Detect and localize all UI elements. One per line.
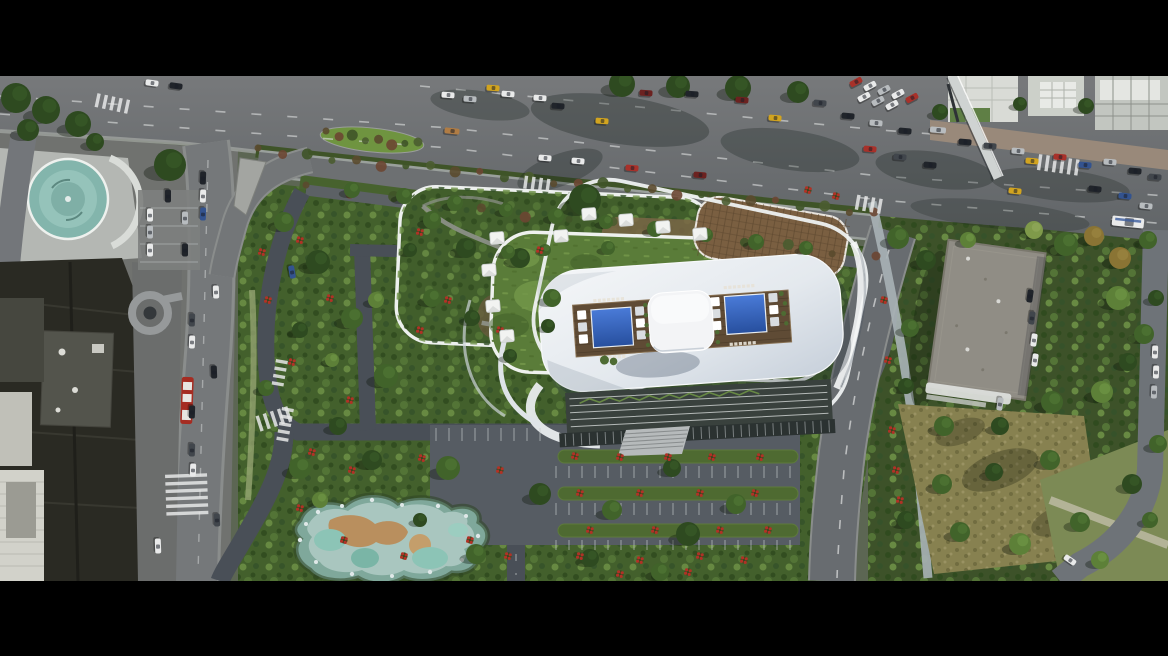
car: [1024, 157, 1039, 166]
canopy-tent: [490, 231, 505, 244]
car-glass: [774, 116, 778, 120]
flower: [580, 494, 583, 497]
flower: [636, 560, 639, 563]
flower: [656, 527, 659, 530]
car: [211, 284, 219, 299]
flower: [756, 457, 759, 460]
flower: [832, 196, 835, 199]
car: [892, 153, 907, 162]
flower: [297, 504, 300, 507]
car: [982, 142, 997, 151]
flower: [536, 250, 539, 253]
flower: [893, 427, 896, 430]
canopy-tent: [582, 207, 597, 220]
median-bush: [846, 209, 853, 216]
flower: [888, 361, 891, 364]
car-glass: [1093, 187, 1097, 191]
flower: [752, 489, 755, 492]
car: [1127, 167, 1142, 176]
aerial-scene: [0, 0, 1168, 656]
flower: [580, 557, 583, 560]
car: [767, 114, 782, 123]
median-bush: [402, 162, 409, 169]
car-glass: [904, 129, 908, 133]
tree-highlight: [374, 294, 382, 302]
tree-highlight: [383, 366, 395, 378]
car: [187, 442, 195, 457]
flower: [496, 470, 499, 473]
entry-stairs: [618, 426, 690, 456]
tree-highlight: [1130, 476, 1140, 486]
car-glass: [1123, 194, 1127, 198]
flower: [668, 458, 671, 461]
car-glass: [492, 86, 496, 90]
alley: [132, 262, 182, 581]
median-bush: [829, 250, 836, 257]
flower: [309, 448, 312, 451]
flower: [505, 552, 508, 555]
flower: [884, 360, 887, 363]
tree-highlight: [966, 234, 974, 242]
car-glass: [214, 291, 218, 295]
flower: [572, 452, 575, 455]
flower: [416, 232, 419, 235]
letterbox-bar-top: [0, 0, 1168, 76]
median-bush: [386, 139, 397, 150]
flower: [701, 490, 704, 493]
flower: [885, 356, 888, 359]
flower: [420, 233, 423, 236]
car: [187, 334, 195, 349]
median-bush: [566, 216, 573, 223]
flower: [900, 501, 903, 504]
tree-highlight: [75, 114, 88, 127]
flower: [804, 190, 807, 193]
flower: [417, 326, 420, 329]
car-glass: [998, 402, 1002, 406]
flower: [404, 557, 407, 560]
flower: [445, 296, 448, 299]
car-glass: [148, 214, 152, 218]
tree-highlight: [1078, 514, 1088, 524]
car-glass: [290, 270, 295, 274]
flower: [576, 493, 579, 496]
flower: [296, 508, 299, 511]
flower: [697, 552, 700, 555]
flower: [641, 490, 644, 493]
tree-highlight: [506, 246, 513, 253]
car: [928, 126, 946, 135]
tree-highlight: [418, 514, 425, 521]
car: [485, 84, 500, 92]
tree-highlight: [464, 240, 474, 250]
car-glass: [201, 213, 205, 217]
car: [812, 99, 827, 108]
car-glass: [190, 411, 194, 415]
car-glass: [1031, 159, 1035, 163]
flower: [651, 530, 654, 533]
flower: [764, 530, 767, 533]
flower: [577, 489, 580, 492]
car-glass: [1017, 149, 1021, 153]
flower: [700, 494, 703, 497]
tree-highlight: [588, 551, 597, 560]
flower: [740, 560, 743, 563]
flower: [897, 496, 900, 499]
flower: [885, 297, 888, 300]
flower: [637, 489, 640, 492]
flower: [896, 500, 899, 503]
flower: [808, 191, 811, 194]
flower: [684, 572, 687, 575]
flower: [897, 467, 900, 470]
flower: [296, 240, 299, 243]
median-bush: [476, 168, 483, 175]
car-glass: [148, 231, 152, 235]
flower: [418, 458, 421, 461]
flower: [620, 458, 623, 461]
tree-highlight: [350, 184, 358, 192]
car: [1010, 147, 1025, 156]
flower: [405, 553, 408, 556]
flower: [889, 357, 892, 360]
car-glass: [964, 140, 968, 144]
car-glass: [150, 81, 154, 85]
tree-highlight: [735, 78, 748, 91]
flower: [300, 241, 303, 244]
flower: [713, 454, 716, 457]
flower: [688, 573, 691, 576]
car-glass: [201, 177, 205, 181]
flower: [616, 574, 619, 577]
car: [1151, 364, 1159, 379]
flower: [350, 401, 353, 404]
tree-highlight: [544, 245, 550, 251]
car: [212, 512, 220, 527]
flower: [617, 453, 620, 456]
flower: [587, 526, 590, 529]
flower: [500, 471, 503, 474]
flower: [884, 301, 887, 304]
flower: [696, 556, 699, 559]
tree-highlight: [1098, 553, 1107, 562]
tree-highlight: [1148, 514, 1156, 522]
car: [181, 242, 189, 257]
car-glass: [577, 159, 581, 163]
flower: [809, 187, 812, 190]
car: [1052, 153, 1067, 162]
flower: [259, 248, 262, 251]
median-bush: [414, 138, 423, 147]
flower: [300, 509, 303, 512]
flower: [421, 229, 424, 232]
tree-highlight: [904, 513, 913, 522]
flower: [744, 561, 747, 564]
car: [440, 91, 455, 99]
car-glass: [507, 92, 511, 96]
flower: [590, 531, 593, 534]
flower: [293, 359, 296, 362]
flower: [340, 540, 343, 543]
tree-highlight: [1092, 228, 1102, 238]
flower: [470, 541, 473, 544]
median-bush: [698, 191, 705, 198]
tree-highlight: [330, 354, 337, 361]
car-glass: [215, 519, 219, 523]
flower: [768, 531, 771, 534]
car-glass: [1109, 160, 1113, 164]
car: [1147, 173, 1162, 182]
flower: [889, 426, 892, 429]
car: [1077, 161, 1092, 170]
car: [922, 161, 937, 170]
median-bush: [362, 137, 369, 144]
flower: [717, 526, 720, 529]
tree-highlight: [1146, 233, 1155, 242]
tree-highlight: [1156, 437, 1165, 446]
car-glass: [691, 92, 695, 96]
tree-highlight: [924, 252, 934, 262]
flower: [837, 193, 840, 196]
garden-path-road: [362, 248, 368, 430]
car-glass: [174, 84, 178, 88]
tree-highlight: [430, 213, 439, 222]
car-glass: [1134, 169, 1138, 173]
flower: [751, 493, 754, 496]
flower: [341, 536, 344, 539]
tree-highlight: [998, 419, 1007, 428]
flower: [576, 556, 579, 559]
car-glass: [544, 156, 548, 160]
tree-highlight: [1063, 234, 1075, 246]
car: [862, 145, 877, 154]
flower: [330, 299, 333, 302]
flower: [655, 531, 658, 534]
flower: [669, 454, 672, 457]
letterbox-bar-bottom: [0, 581, 1168, 656]
canopy-tent: [693, 227, 708, 240]
median-bush: [303, 182, 310, 189]
median-bush: [819, 201, 830, 212]
flower: [401, 552, 404, 555]
car: [550, 102, 565, 110]
tree-highlight: [1049, 393, 1060, 404]
median-bush: [872, 252, 881, 261]
tree-highlight: [93, 135, 102, 144]
flower: [720, 531, 723, 534]
median-bush: [550, 180, 557, 187]
flower: [745, 557, 748, 560]
flower: [575, 457, 578, 460]
flower: [264, 300, 267, 303]
swimming-pool-right: [724, 294, 767, 335]
tree-highlight: [1142, 326, 1152, 336]
car: [198, 206, 206, 221]
tree-highlight: [942, 418, 952, 428]
flower: [265, 296, 268, 299]
flower: [708, 457, 711, 460]
tree-highlight: [166, 152, 182, 168]
car-glass: [1153, 351, 1157, 355]
car-glass: [190, 341, 194, 345]
car-glass: [1152, 391, 1156, 395]
car: [188, 462, 196, 477]
flower: [709, 453, 712, 456]
median-bush: [255, 145, 262, 152]
flower: [269, 297, 272, 300]
tree-highlight: [581, 187, 597, 203]
flower: [466, 540, 469, 543]
car-glass: [201, 195, 205, 199]
car-glass: [819, 101, 823, 105]
tree-highlight: [43, 99, 57, 113]
median-bush: [352, 155, 361, 164]
tree-highlight: [958, 524, 968, 534]
flower: [308, 452, 311, 455]
flower: [297, 236, 300, 239]
car: [462, 95, 477, 103]
flower: [712, 458, 715, 461]
flower: [400, 556, 403, 559]
tree-highlight: [685, 524, 697, 536]
car-glass: [191, 469, 195, 473]
median-bush: [376, 161, 387, 172]
flower: [640, 494, 643, 497]
tree-highlight: [606, 242, 613, 249]
flower: [326, 298, 329, 301]
tree-highlight: [938, 106, 946, 114]
tree-highlight: [1126, 355, 1135, 364]
tree-highlight: [12, 86, 27, 101]
flower: [331, 295, 334, 298]
canopy-tent: [500, 329, 515, 342]
car: [537, 154, 552, 163]
flower: [288, 362, 291, 365]
median-bush: [335, 132, 344, 141]
car: [198, 170, 206, 185]
tree-highlight: [554, 210, 562, 218]
flower: [496, 330, 499, 333]
car-glass: [156, 544, 160, 548]
flower: [312, 453, 315, 456]
flower: [755, 494, 758, 497]
car-glass: [869, 147, 873, 151]
flower: [351, 397, 354, 400]
tree-highlight: [453, 197, 461, 205]
flower: [467, 536, 470, 539]
flower: [444, 300, 447, 303]
median-bush: [772, 197, 779, 204]
flower: [349, 466, 352, 469]
median-bush: [401, 140, 408, 147]
flower: [262, 253, 265, 256]
flower: [836, 197, 839, 200]
flower: [541, 247, 544, 250]
flower: [540, 251, 543, 254]
median-bush: [745, 195, 756, 206]
tree-highlight: [754, 236, 762, 244]
flower: [421, 327, 424, 330]
flower: [696, 493, 699, 496]
tree-highlight: [1117, 249, 1128, 260]
tree-highlight: [408, 244, 415, 251]
flower: [313, 449, 316, 452]
flower: [344, 541, 347, 544]
flower: [497, 466, 500, 469]
car-glass: [601, 119, 605, 123]
car: [840, 112, 855, 121]
car: [1149, 384, 1157, 399]
flower: [892, 431, 895, 434]
tree-highlight: [1018, 98, 1025, 105]
canopy-tent: [656, 220, 671, 233]
tree-highlight: [804, 242, 811, 249]
tree-highlight: [1048, 452, 1058, 462]
median-bush: [520, 212, 531, 223]
flower: [571, 456, 574, 459]
median-bush: [648, 184, 657, 193]
car: [164, 188, 172, 203]
flower: [504, 556, 507, 559]
flower: [581, 490, 584, 493]
flower: [893, 466, 896, 469]
flower: [701, 553, 704, 556]
tree-highlight: [734, 496, 744, 506]
tree-highlight: [1084, 100, 1092, 108]
car: [146, 224, 154, 239]
car: [1150, 344, 1158, 359]
flower: [347, 396, 350, 399]
tree-highlight: [297, 459, 308, 470]
car-glass: [447, 93, 451, 97]
flower: [665, 453, 668, 456]
flower: [577, 552, 580, 555]
flower: [420, 331, 423, 334]
tree-highlight: [1099, 383, 1110, 394]
flower: [581, 553, 584, 556]
tree-highlight: [940, 476, 950, 486]
tree-highlight: [445, 458, 457, 470]
car-glass: [741, 98, 745, 102]
median-bush: [328, 157, 335, 164]
tree-highlight: [604, 216, 611, 223]
car-glass: [699, 173, 703, 177]
tree-highlight: [550, 291, 559, 300]
tree-highlight: [908, 321, 917, 330]
median-bush: [347, 130, 358, 141]
median-bush: [450, 166, 461, 177]
tree-highlight: [537, 485, 548, 496]
car-glass: [1013, 189, 1017, 193]
median-bush: [434, 202, 441, 209]
canopy-tent: [554, 229, 569, 242]
flower: [416, 330, 419, 333]
car: [153, 537, 161, 554]
car: [734, 96, 749, 105]
flower: [508, 557, 511, 560]
car-glass: [469, 97, 473, 101]
car-glass: [148, 249, 152, 253]
flower: [888, 430, 891, 433]
tree-highlight: [349, 309, 360, 320]
flower: [901, 497, 904, 500]
flower: [348, 470, 351, 473]
flower: [881, 296, 884, 299]
flower: [576, 453, 579, 456]
car-glass: [190, 449, 194, 453]
car-glass: [929, 163, 933, 167]
median-bush: [722, 197, 731, 206]
